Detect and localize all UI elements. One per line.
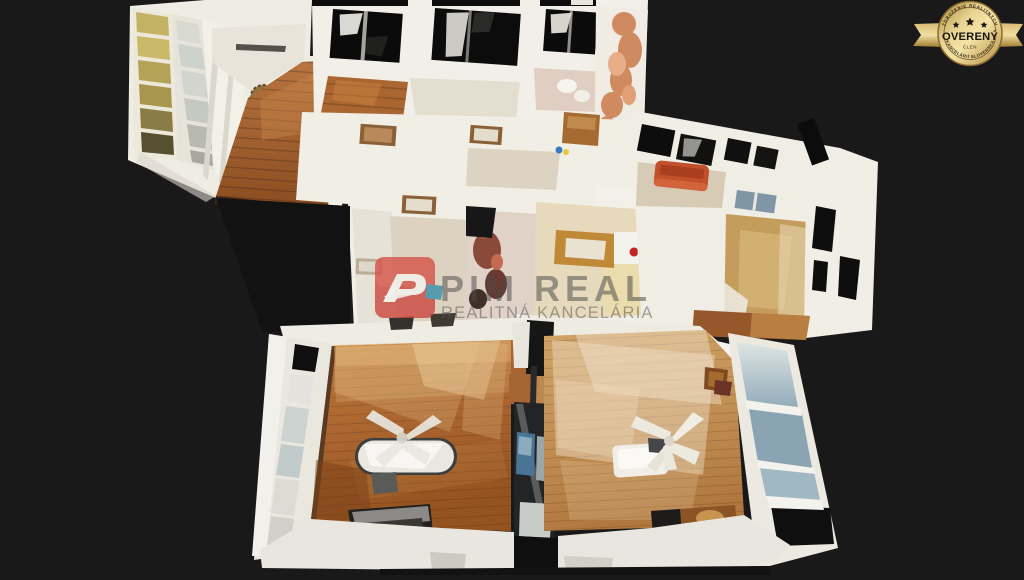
svg-text:ČLEN: ČLEN <box>963 44 977 50</box>
svg-text:REALITNÁ KANCELÁRIA: REALITNÁ KANCELÁRIA <box>441 303 654 322</box>
svg-text:OVERENÝ: OVERENÝ <box>942 30 998 43</box>
svg-text:PIM REAL: PIM REAL <box>440 268 652 309</box>
